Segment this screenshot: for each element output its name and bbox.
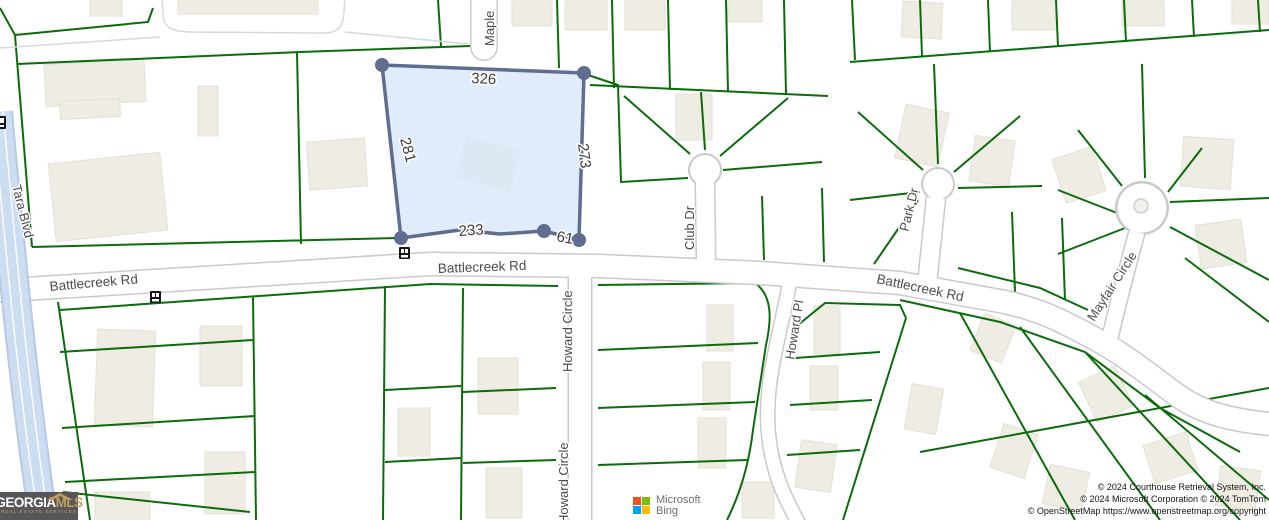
map-viewport[interactable]: 326 281 273 233 61 Maple Battlecreek Rd … <box>0 0 1269 520</box>
attribution-line-microsoft-tomtom: © 2024 Microsoft Corporation © 2024 TomT… <box>1028 493 1266 505</box>
georgia-mls-roof-icon <box>47 493 73 500</box>
street-label-maple: Maple <box>482 11 497 46</box>
attribution-line-openstreetmap-link[interactable]: © OpenStreetMap https://www.openstreetma… <box>1028 505 1266 517</box>
poi-icon-center <box>399 247 410 259</box>
map-canvas[interactable]: 326 281 273 233 61 Maple Battlecreek Rd … <box>0 0 1269 520</box>
mayfair-island <box>1134 199 1148 213</box>
subject-parcel[interactable]: 326 281 273 233 61 <box>375 58 594 248</box>
bing-logo: Microsoft Bing <box>633 495 701 517</box>
dimension-label-top: 326 <box>471 70 497 88</box>
attribution-line-crs: © 2024 Courthouse Retrieval System, Inc. <box>1028 481 1266 493</box>
street-label-battlecreek-center: Battlecreek Rd <box>438 258 527 276</box>
road-club-dr <box>705 182 706 260</box>
road-park-dr <box>926 198 936 294</box>
dimension-label-bottom: 233 <box>458 221 484 240</box>
street-label-howard-circle-lower: Howard Circle <box>556 442 571 520</box>
georgia-mls-logo: GEORGIAMLS REAL ESTATE SERVICES <box>0 492 78 520</box>
bing-logo-bing-text: Bing <box>656 506 701 517</box>
map-attribution: © 2024 Courthouse Retrieval System, Inc.… <box>1028 481 1266 517</box>
poi-icon-edge <box>0 116 6 129</box>
microsoft-logo-icon <box>633 497 650 514</box>
ms-square-yellow <box>642 506 650 514</box>
ms-square-blue <box>633 506 641 514</box>
georgia-mls-tagline: REAL ESTATE SERVICES <box>1 509 77 515</box>
dimension-label-right: 273 <box>574 142 594 169</box>
dimension-label-bottom-right: 61 <box>555 228 574 248</box>
street-label-club-dr: Club Dr <box>682 205 697 250</box>
street-label-howard-circle-upper: Howard Circle <box>560 290 575 372</box>
park-dr-bulb <box>923 169 953 199</box>
club-dr-bulb <box>690 155 720 185</box>
poi-icon-left <box>150 291 161 303</box>
ms-square-green <box>642 497 650 505</box>
ms-square-red <box>633 497 641 505</box>
